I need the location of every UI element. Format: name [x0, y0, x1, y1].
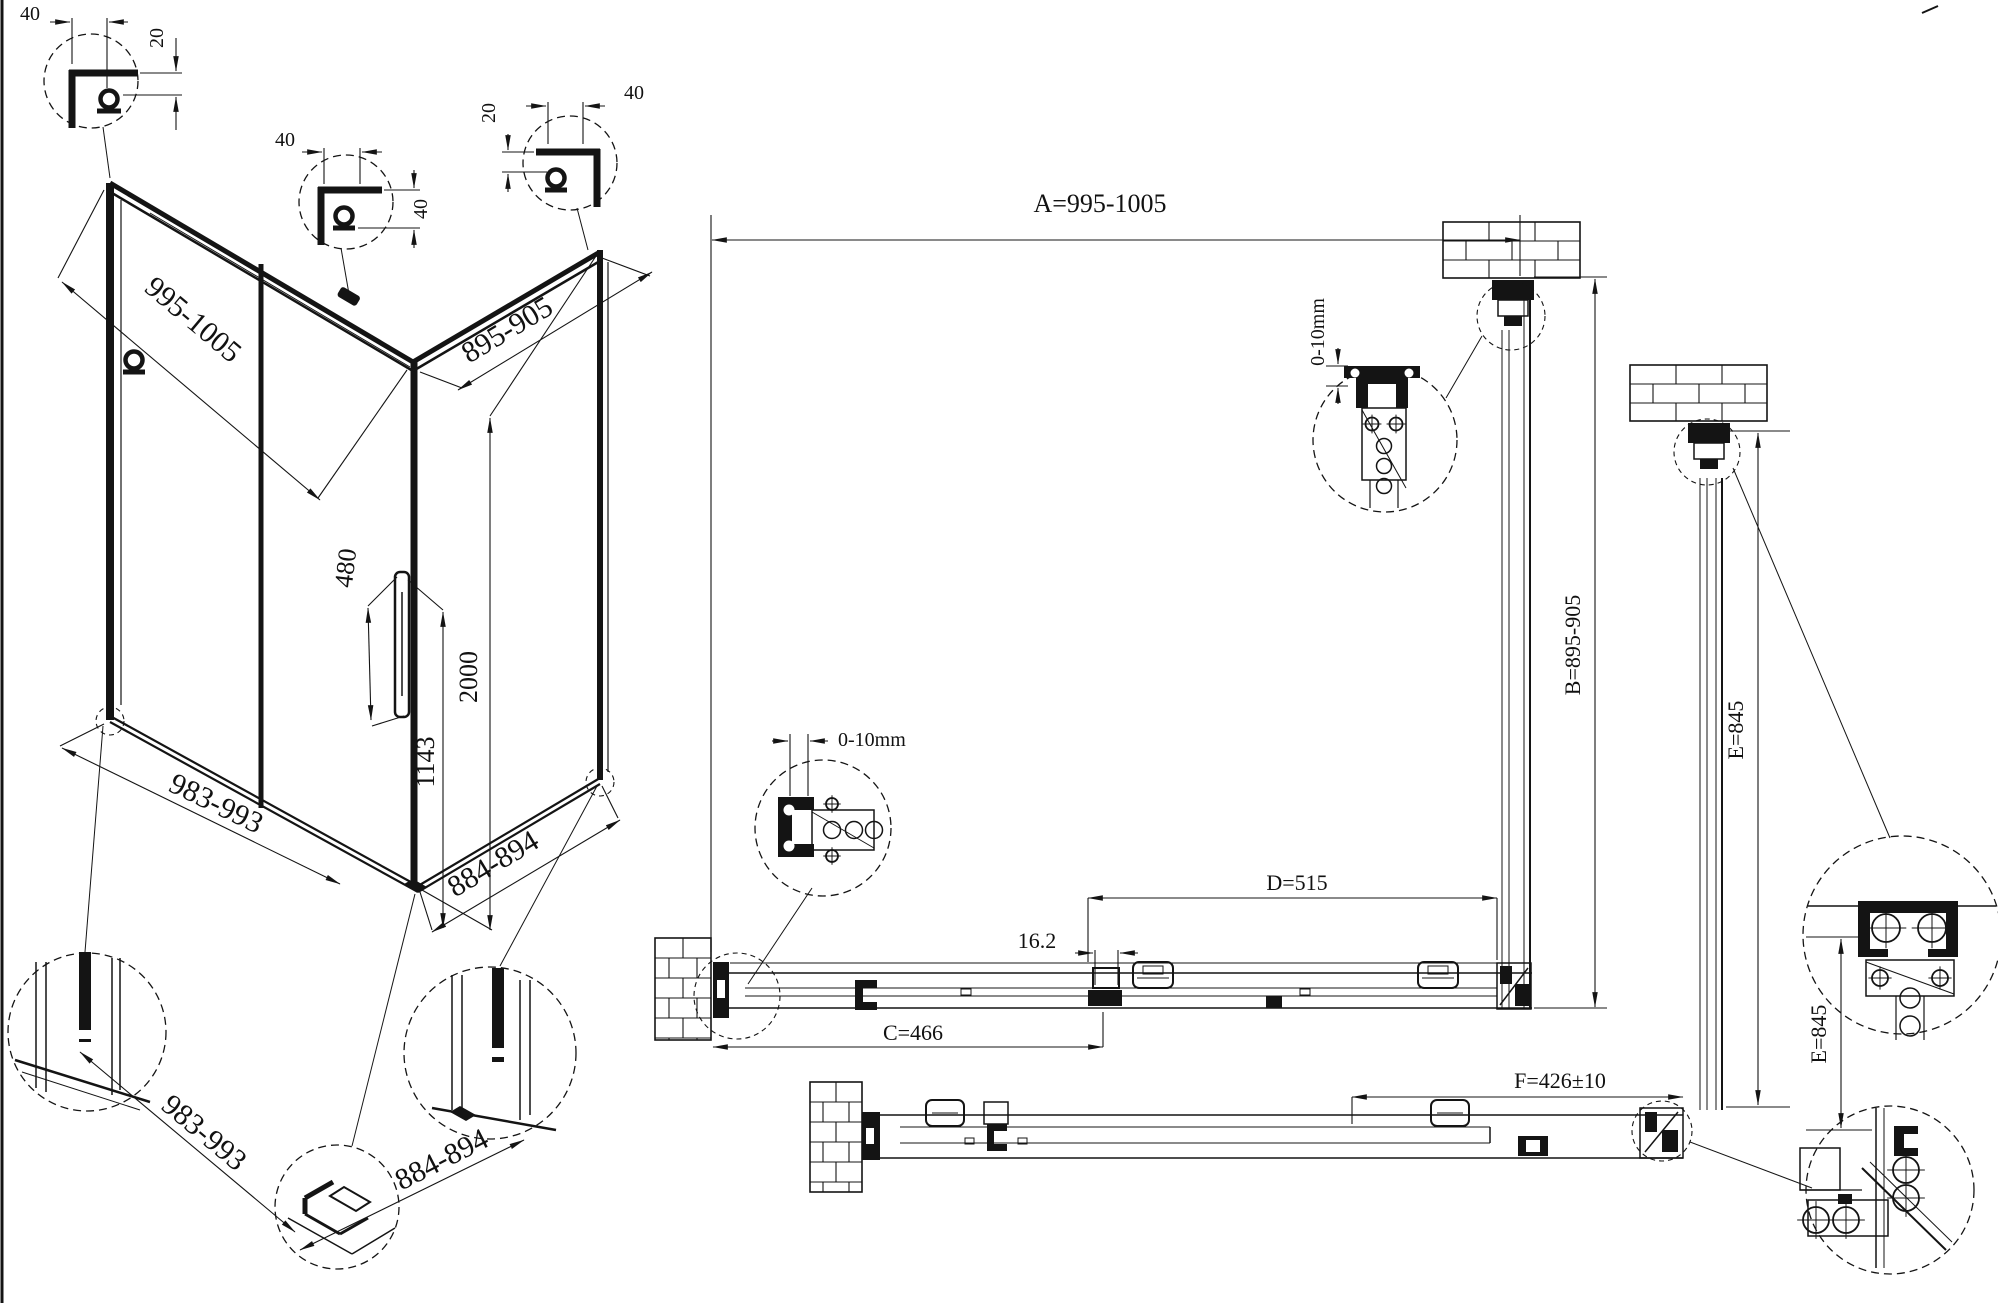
side-panel-b: [1477, 280, 1545, 1008]
detail1-height-label: 20: [146, 28, 168, 48]
roller-carriage: [1133, 962, 1173, 988]
detail-circle-bottom-middle: [275, 1145, 399, 1269]
dim-b-label: B=895-905: [1560, 595, 1585, 695]
rail-assembly-top: [655, 938, 1532, 1040]
roller-icon: [333, 208, 355, 229]
side-panel-e: [1674, 419, 1890, 1110]
detail3-width-label: 40: [624, 82, 644, 104]
dim-adjust-top-label: 0-10mm: [1307, 298, 1329, 366]
dim-b: B=895-905: [1534, 277, 1607, 1008]
wall-middle-right: [1630, 365, 1767, 421]
wall-top-right: [1443, 222, 1580, 278]
dim-c-label: C=466: [883, 1020, 943, 1045]
isometric-view: 40 20 40 40: [8, 3, 652, 1269]
roller-carriage: [1418, 962, 1458, 988]
detail-circle-bottom-left: [8, 952, 166, 1111]
dim-adjust-left-label: 0-10mm: [838, 729, 906, 751]
detail-circle-top-left: 40 20: [20, 3, 182, 178]
detail2-height-label: 40: [410, 199, 432, 219]
screw-icon: [1363, 415, 1382, 434]
roller-icon: [545, 170, 567, 191]
detail-circle-corner: [1797, 1106, 1974, 1274]
detail-circle-top-middle: 40 40: [275, 129, 432, 294]
roller-icon: [123, 352, 145, 373]
dim-e-detail: E=845: [1806, 937, 1872, 1130]
dim-e-side-label: E=845: [1723, 701, 1748, 760]
iso-bottom-details: 983-993 884-894: [8, 726, 597, 1269]
dim-e-side: E=845: [1723, 431, 1790, 1107]
detail-circle-wall-anchor: [1803, 836, 1998, 1040]
detail-circle-bottom-right: [404, 967, 576, 1139]
door-stopper: [855, 980, 877, 1010]
dim-e-detail-label: E=845: [1806, 1005, 1831, 1064]
dim-front-width: 995-1005: [138, 270, 247, 369]
dim-handle-length: 480: [329, 547, 363, 589]
roller-carriage: [926, 1100, 964, 1126]
screw-icon: [1387, 415, 1406, 434]
dim-a-label: A=995-1005: [1033, 189, 1166, 218]
dim-detail-return-base: 884-894: [390, 1122, 494, 1197]
dim-front-base: 983-993: [164, 767, 268, 840]
door-handle: [395, 572, 409, 717]
detail1-width-label: 40: [20, 3, 40, 25]
detail3-height-label: 20: [478, 103, 500, 123]
detail-circle-top-right: 40 20: [478, 82, 644, 250]
plan-view: A=995-1005 B=895-905: [655, 189, 1998, 1274]
dim-handle-height: 1143: [411, 736, 440, 787]
roller-carriage: [1431, 1100, 1469, 1126]
detail2-width-label: 40: [275, 129, 295, 151]
dim-detail-front-base: 983-993: [155, 1088, 253, 1178]
dim-a: A=995-1005: [711, 189, 1520, 952]
door-stopper: [987, 1124, 1007, 1151]
dim-c: C=466: [713, 1012, 1103, 1047]
door-roller: [336, 286, 361, 307]
dim-d-label: D=515: [1266, 870, 1327, 895]
dim-d: D=515: [1088, 870, 1497, 962]
cad-drawing-canvas: 40 20 40 40: [0, 0, 1998, 1303]
screw-icon: [1866, 908, 1907, 949]
dim-height: 2000: [454, 651, 483, 703]
roller-icon: [97, 91, 121, 112]
rail-assembly-bottom: [810, 1082, 1812, 1192]
detail-adjust-left: 0-10mm: [748, 729, 906, 984]
dim-f-label: F=426±10: [1514, 1068, 1606, 1093]
drawing-page: 40 20 40 40: [0, 0, 1998, 1303]
screw-icon: [1797, 1201, 1835, 1239]
detail-adjust-top: 0-10mm: [1307, 298, 1482, 512]
dim-gap-label: 16.2: [1018, 928, 1057, 953]
